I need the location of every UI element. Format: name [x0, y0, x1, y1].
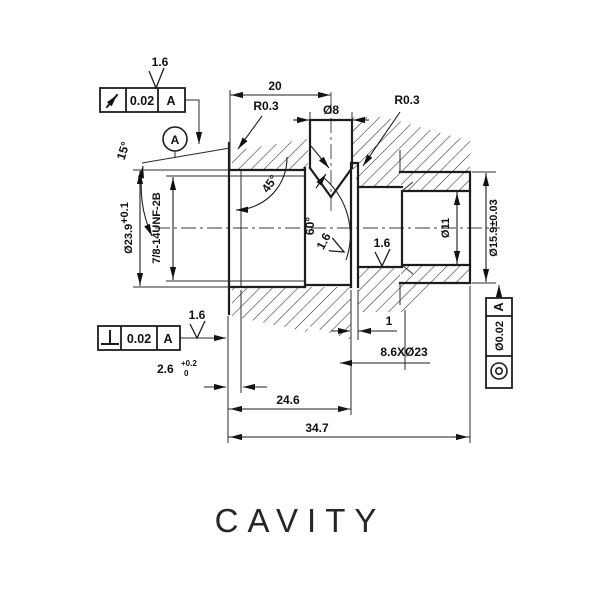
hatch-bottom-left [232, 287, 308, 332]
drawing-sheet: 1.6 0.02 A A 15° 20 Ø8 R0.3 R0.3 [0, 0, 600, 600]
r03-left-value: R0.3 [253, 99, 279, 113]
finish-value: 1.6 [189, 308, 206, 322]
dimension-20: 20 [230, 79, 331, 148]
dia-8-value: Ø8 [323, 103, 339, 117]
datum-feature-a: A [142, 127, 230, 170]
dimension-246: 24.6 [228, 393, 351, 409]
fcf-perpendicularity: 0.02 A [98, 326, 226, 350]
concentricity-icon [491, 363, 507, 379]
angle-15-value: 15° [114, 140, 133, 162]
surface-finish-top: 1.6 [149, 55, 169, 88]
datum-label: A [171, 133, 180, 147]
perpendicularity-icon [102, 331, 118, 344]
perp-tolerance: 0.02 [127, 332, 151, 346]
depth-26-tol-up: +0.2 [181, 359, 197, 368]
dimension-thread: 7/8-14UNF-2B [151, 176, 230, 281]
surface-finish-cone: 1.6 [314, 230, 348, 259]
conc-tolerance: Ø0.02 [494, 321, 506, 351]
dia-239-value: Ø23.9+0.1 [119, 202, 135, 254]
dimension-dia-239: Ø23.9+0.1 [119, 170, 230, 287]
spotface-value: 8.6XØ23 [380, 345, 428, 359]
part-title: CAVITY [215, 502, 386, 539]
length-246-value: 24.6 [276, 393, 300, 407]
fcf-concentricity: A Ø0.02 [486, 285, 512, 388]
angle-60-value: 60° [303, 217, 317, 235]
dia-11-value: Ø11 [440, 218, 452, 238]
thread-callout: 7/8-14UNF-2B [151, 192, 163, 264]
hatch-spigot-bottom-wall [400, 265, 470, 283]
dimension-dia-159: Ø15.9±0.03 [472, 172, 500, 283]
length-347-value: 34.7 [305, 421, 329, 435]
depth-26-tol-low: 0 [184, 369, 189, 378]
depth-26-value: 2.6 [157, 362, 174, 376]
hatch-bottom-mid [308, 287, 351, 340]
r03-right-value: R0.3 [394, 93, 420, 107]
surface-finish-left-face: 1.6 [189, 308, 206, 338]
surface-finish-chamber: 1.6 [374, 236, 391, 266]
fcf-runout: 0.02 A [100, 88, 199, 144]
hatch-spigot-top-wall [400, 172, 470, 191]
hatch-top-left [232, 139, 308, 170]
radius-03-left: R0.3 [238, 99, 279, 149]
finish-value: 1.6 [374, 236, 391, 250]
circular-runout-icon [107, 95, 117, 107]
perp-datum: A [163, 332, 172, 346]
engineering-drawing-cavity: 1.6 0.02 A A 15° 20 Ø8 R0.3 R0.3 [0, 0, 600, 600]
length-20-value: 20 [268, 79, 282, 93]
width-1-value: 1 [386, 314, 393, 328]
runout-datum: A [166, 94, 175, 108]
runout-tolerance: 0.02 [130, 94, 154, 108]
finish-value: 1.6 [152, 55, 169, 69]
dia-159-value: Ø15.9±0.03 [488, 199, 500, 256]
conc-datum: A [492, 302, 506, 311]
